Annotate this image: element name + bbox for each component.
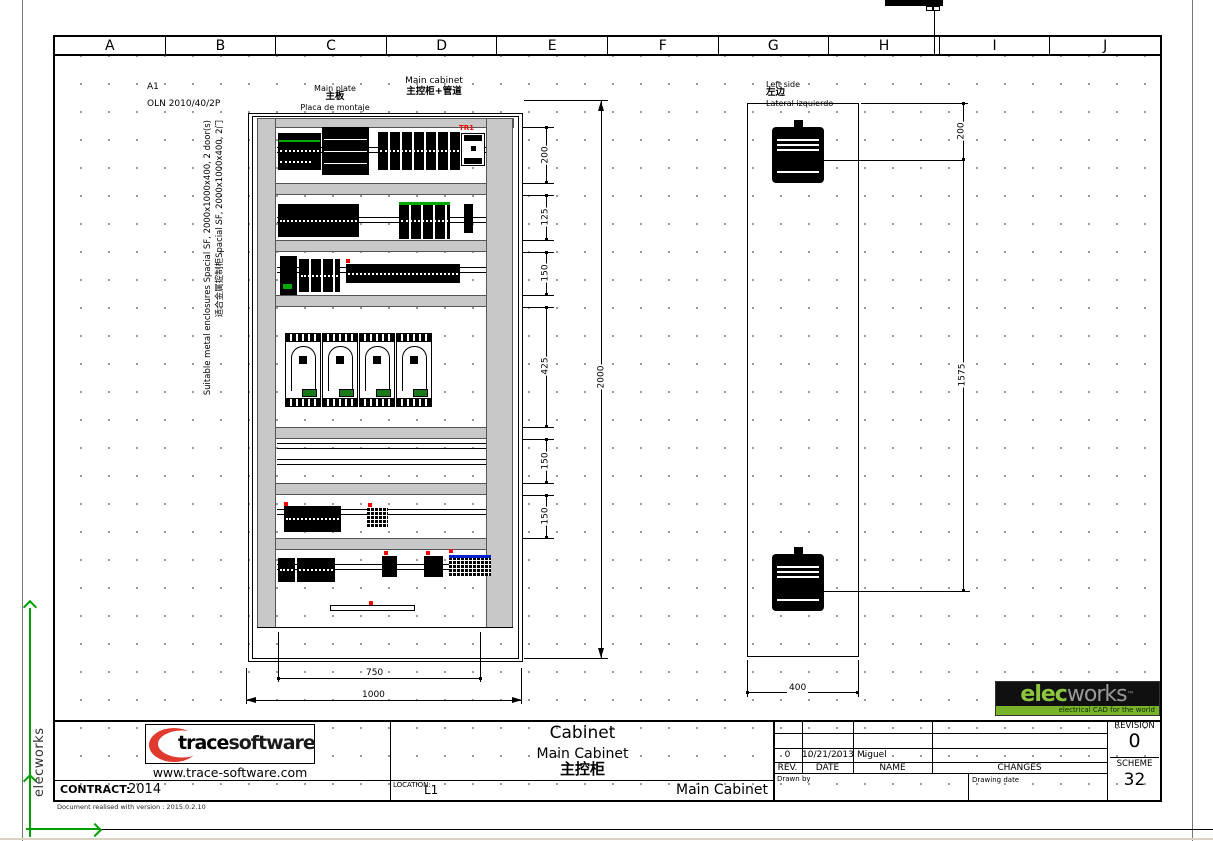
column-header-strip: A B C D E F G H I J	[53, 35, 1162, 56]
main-cabinet-label-en: Main cabinet	[395, 76, 473, 86]
contactor-group	[278, 204, 359, 237]
terminal-block	[367, 508, 388, 527]
leader-line	[824, 591, 970, 592]
tag-marker	[368, 503, 372, 507]
top-marker-square	[926, 6, 933, 11]
revision-value: 0	[1107, 731, 1162, 753]
column-header: H	[828, 37, 939, 54]
terminal-strip	[278, 558, 295, 582]
margin-brand-text: elecworks	[33, 728, 48, 798]
tag-marker	[384, 551, 388, 555]
elecworks-logo-works: works	[1067, 682, 1127, 707]
component-tag: TR1	[459, 124, 474, 132]
origin-x-arrow-icon	[88, 823, 102, 837]
breaker-row	[378, 132, 461, 170]
logo-software: software	[228, 732, 314, 754]
rev-header: CHANGES	[932, 763, 1107, 773]
enclosure-note-zh: 适合金属控制柜Spacial SF, 2000x1000x400, 2门	[215, 120, 227, 412]
dim-label: 150	[541, 506, 551, 525]
dim-label: 200	[957, 121, 967, 140]
location-value: L1	[424, 784, 438, 798]
drawing-subtitle-zh: 主控柜	[460, 761, 705, 778]
soft-starter	[322, 333, 358, 407]
module-group	[299, 259, 340, 292]
rev-date: 10/21/2013	[802, 750, 853, 760]
column-header: F	[607, 37, 718, 54]
din-rail	[277, 459, 486, 465]
leader-line	[824, 160, 964, 161]
terminal-strip	[449, 558, 491, 576]
transformer	[461, 133, 485, 166]
dim-label: 425	[541, 356, 551, 375]
contract-label: CONTRACT:	[60, 784, 131, 797]
dim-label: 150	[541, 451, 551, 470]
breaker-row	[399, 202, 450, 239]
wire-duct-right	[486, 118, 513, 628]
dim-label: 125	[541, 207, 551, 226]
terminal-strip	[346, 264, 460, 283]
drawing-date-label: Drawing date	[972, 776, 1019, 784]
elecworks-logo: elecworks™ electrical CAD for the world	[995, 681, 1160, 716]
drawing-name: Main Cabinet	[600, 782, 768, 798]
side-device	[772, 554, 824, 611]
column-header: E	[496, 37, 607, 54]
column-header: D	[386, 37, 497, 54]
relay-block	[424, 556, 443, 577]
main-breaker	[322, 127, 369, 175]
scheme-value: 32	[1107, 771, 1162, 791]
reference-label: OLN 2010/40/2P	[147, 99, 220, 109]
trace-software-logo: tracesoftware	[145, 724, 315, 764]
contract-value: 2014	[128, 783, 161, 798]
wire-duct-left	[257, 118, 276, 628]
soft-starter	[359, 333, 395, 407]
version-note: Document realised with version : 2015.0.…	[57, 804, 206, 811]
column-header: J	[1049, 37, 1160, 54]
dim-label: 1000	[360, 690, 387, 700]
column-header: I	[939, 37, 1050, 54]
wire-duct-h	[275, 295, 487, 307]
wire-duct-h	[275, 483, 487, 495]
soft-starter	[285, 333, 321, 407]
format-label: A1	[147, 82, 159, 92]
soft-starter	[396, 333, 432, 407]
aux-block	[464, 204, 473, 233]
dim-label: 150	[541, 263, 551, 282]
blank-rail	[330, 605, 415, 611]
column-header: C	[275, 37, 386, 54]
tag-marker	[346, 259, 350, 263]
wire-duct-top	[257, 118, 514, 128]
dim-label: 1575	[957, 363, 967, 388]
rev-header: DATE	[802, 763, 853, 773]
tag-marker	[426, 551, 430, 555]
wire-duct-h	[275, 240, 487, 252]
rev-header: REV.	[773, 763, 802, 773]
tag-marker	[449, 549, 453, 553]
elecworks-logo-elec: elec	[1020, 682, 1066, 707]
column-header: A	[55, 37, 165, 54]
scheme-label: SCHEME	[1107, 760, 1162, 770]
trademark-icon: ™	[1127, 690, 1135, 699]
column-header: G	[718, 37, 829, 54]
website-link[interactable]: www.trace-software.com	[120, 766, 340, 780]
column-header: B	[165, 37, 276, 54]
rev-value: 0	[773, 750, 802, 760]
wire-duct-h	[275, 427, 487, 439]
plc-module	[280, 256, 297, 295]
side-device	[772, 127, 824, 183]
dim-label: 200	[541, 145, 551, 164]
drawn-by-label: Drawn by	[777, 775, 811, 783]
main-plate-label-zh: 主板	[300, 92, 370, 103]
paper-left-edge	[22, 0, 23, 841]
relay-block	[382, 556, 397, 577]
breaker-group	[278, 133, 321, 170]
dim-label: 2000	[596, 365, 606, 390]
paper-bottom-line	[26, 829, 1213, 830]
cad-drawing-page: { "sheet": { "columns": ["A","B","C","D"…	[0, 0, 1213, 841]
wire-duct-h	[275, 183, 487, 195]
enclosure-note-en: Suitable metal enclosures Spacial SF, 20…	[203, 120, 215, 412]
wire-duct-h	[275, 538, 487, 550]
elecworks-tagline: electrical CAD for the world	[996, 706, 1159, 715]
main-cabinet-label-zh: 主控柜+管道	[395, 87, 473, 98]
drawing-title: Cabinet	[460, 724, 705, 744]
origin-y-arrow-icon	[23, 600, 37, 614]
rev-name: Miguel	[857, 750, 887, 760]
paper-right-edge	[1192, 0, 1193, 841]
rev-header: NAME	[853, 763, 932, 773]
din-rail	[277, 443, 486, 449]
dim-label: 400	[787, 683, 808, 693]
enclosure-note: Suitable metal enclosures Spacial SF, 20…	[203, 120, 226, 412]
logo-trace: trace	[178, 732, 228, 754]
dim-label: 750	[364, 668, 385, 678]
side-view-label-zh: 左边	[766, 88, 785, 99]
terminal-strip	[297, 558, 335, 582]
terminal-strip	[284, 506, 341, 532]
origin-y-axis	[29, 608, 31, 837]
main-plate-label-es: Placa de montaje	[300, 103, 370, 112]
window-bottom-edge	[0, 838, 1213, 840]
